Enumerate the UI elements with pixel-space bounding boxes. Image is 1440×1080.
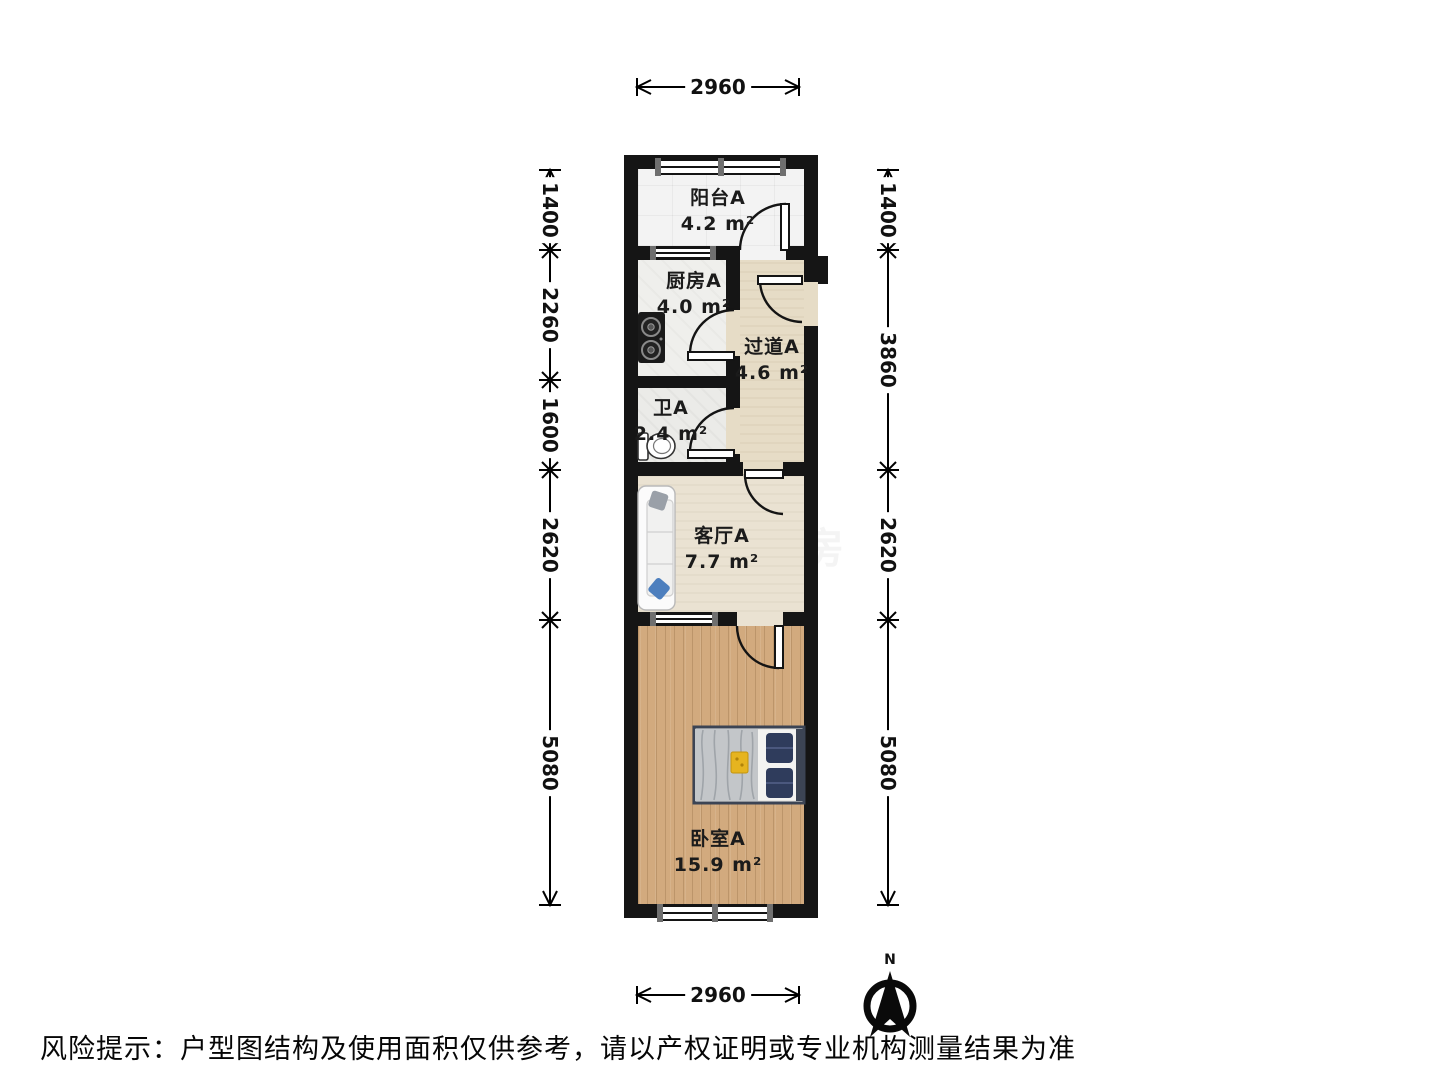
dim-right-5080: 5080 [876,730,900,796]
room-label-hallway: 过道A4.6 m² [707,334,837,386]
room-label-kitchen: 厨房A4.0 m² [629,268,759,320]
compass-north-label: N [876,952,904,968]
room-label-living: 客厅A7.7 m² [657,523,787,575]
bed-icon [694,727,804,803]
dim-top: 2960 [685,75,751,99]
dim-right-3860: 3860 [876,327,900,393]
floorplan-canvas: 找找房 找找房 [0,0,1440,1080]
dim-left-5080: 5080 [538,730,562,796]
room-label-bathroom: 卫A2.4 m² [606,395,736,447]
room-label-bedroom: 卧室A15.9 m² [653,826,783,878]
risk-notice: 风险提示：户型图结构及使用面积仅供参考，请以产权证明或专业机构测量结果为准 [40,1027,1076,1066]
dim-left-1400: 1400 [538,177,562,243]
dim-right-1400: 1400 [876,177,900,243]
dim-bottom: 2960 [685,983,751,1007]
dim-left-2260: 2260 [538,282,562,348]
dim-right-2620: 2620 [876,512,900,578]
room-label-balcony: 阳台A4.2 m² [653,185,783,237]
dim-left-1600: 1600 [538,392,562,458]
dim-left-2620: 2620 [538,512,562,578]
